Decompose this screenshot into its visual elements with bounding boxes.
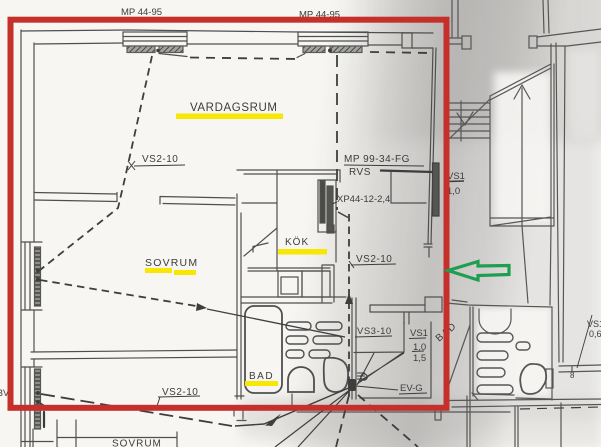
svg-text:1,0: 1,0 — [413, 342, 426, 353]
svg-text:EV-G: EV-G — [400, 383, 423, 394]
svg-text:0,6: 0,6 — [589, 329, 601, 339]
svg-text:VS1: VS1 — [447, 171, 465, 182]
svg-text:MP 99-34-FG: MP 99-34-FG — [344, 154, 410, 165]
svg-text:SOVRUM: SOVRUM — [112, 439, 162, 447]
svg-text:RVS: RVS — [349, 167, 371, 178]
svg-text:VS3-10: VS3-10 — [357, 326, 392, 337]
svg-text:8: 8 — [570, 371, 575, 380]
svg-text:XP44-12-2,4: XP44-12-2,4 — [337, 194, 390, 205]
svg-text:KÖK: KÖK — [285, 236, 309, 248]
svg-text:BAD: BAD — [249, 371, 274, 382]
svg-text:SOVRUM: SOVRUM — [145, 257, 198, 269]
svg-text:VS2-10: VS2-10 — [356, 254, 392, 265]
svg-text:MP 44-95: MP 44-95 — [121, 7, 162, 18]
svg-text:VS1: VS1 — [410, 328, 428, 339]
svg-text:VARDAGSRUM: VARDAGSRUM — [190, 102, 278, 114]
svg-text:VS2-10: VS2-10 — [142, 154, 178, 165]
svg-text:1,5: 1,5 — [413, 353, 426, 364]
